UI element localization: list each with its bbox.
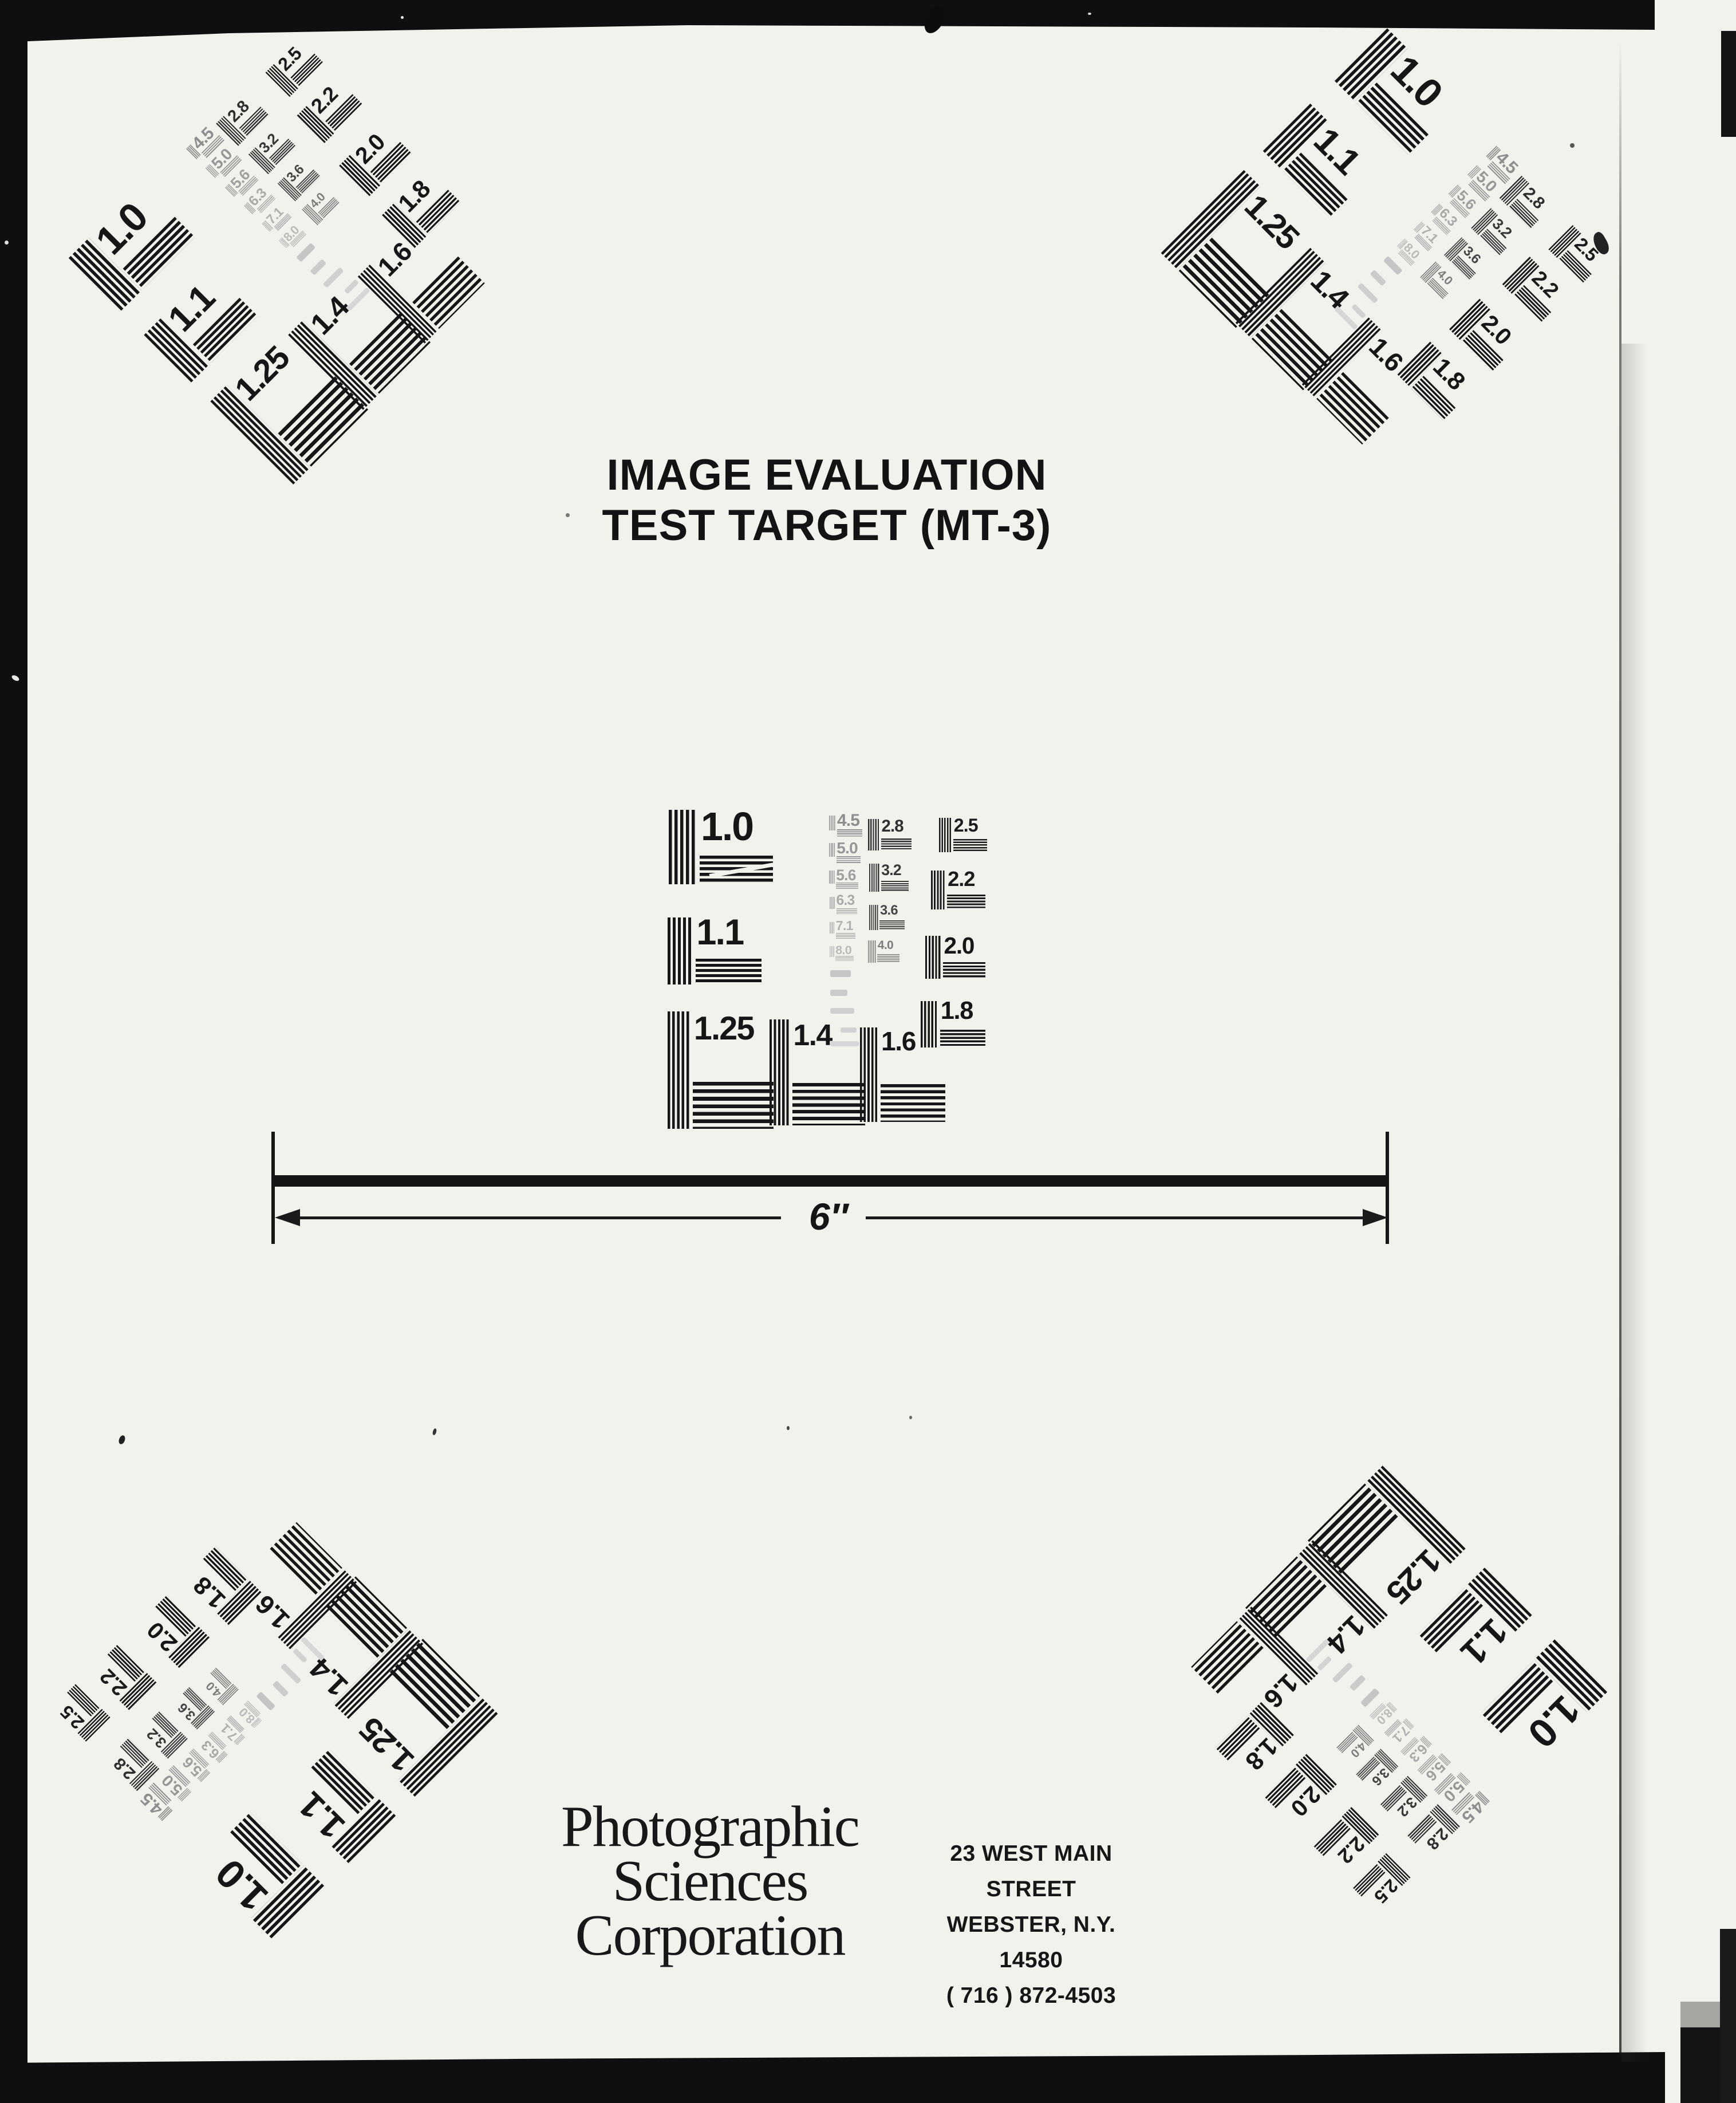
horizontal-bars: [881, 838, 912, 850]
vertical-bars: [921, 1001, 938, 1047]
horizontal-bars: [837, 856, 860, 863]
scan-speck: [1570, 143, 1575, 148]
resolution-value-label: 6.3: [837, 894, 855, 908]
resolution-value-label: 1.25: [1238, 189, 1304, 255]
horizontal-bars: [943, 962, 985, 979]
company-address: 23 WEST MAIN STREET WEBSTER, N.Y. 14580 …: [920, 1836, 1143, 2014]
resolution-value-label: 7.1: [836, 919, 853, 932]
resolution-value-label: 1.6: [881, 1028, 916, 1054]
faint-smudge: [256, 1691, 275, 1711]
horizontal-bars: [837, 829, 862, 837]
horizontal-bars: [836, 883, 858, 889]
scan-speck: [401, 16, 404, 19]
faint-smudge: [1350, 1675, 1366, 1691]
resolution-value-label: 3.6: [880, 904, 898, 917]
vertical-bars: [830, 946, 834, 957]
page-title: IMAGE EVALUATION TEST TARGET (MT-3): [578, 450, 1076, 551]
resolution-value-label: 4.0: [878, 939, 893, 951]
horizontal-bars: [881, 881, 909, 892]
resolution-value-label: 1.0: [701, 806, 753, 846]
test-target-chart-bottom-right: 1.01.11.251.41.61.82.02.22.52.83.23.64.0…: [1148, 1466, 1610, 1928]
faint-smudge: [310, 259, 326, 275]
faint-smudge: [296, 243, 315, 262]
scale-length-label: 6″: [800, 1195, 857, 1238]
title-line-2: TEST TARGET (MT-3): [578, 501, 1076, 551]
vertical-bars: [939, 818, 952, 852]
scanned-page: IMAGE EVALUATION TEST TARGET (MT-3) 1.01…: [0, 0, 1736, 2103]
test-target-chart-center: 1.01.11.251.41.61.82.02.22.52.83.23.64.0…: [668, 808, 1000, 1129]
scan-speck: [566, 513, 570, 517]
faint-smudge: [1358, 282, 1379, 304]
faint-smudge: [1332, 1662, 1353, 1683]
page-edge-shadow: [1621, 344, 1648, 2062]
vertical-bars: [869, 864, 880, 892]
scan-edge-right-lower: [1720, 1929, 1736, 2103]
horizontal-bars: [953, 839, 987, 852]
vertical-bars: [669, 810, 697, 884]
scan-edge-top: [0, 0, 1655, 46]
faint-smudge: [281, 1663, 302, 1684]
resolution-value-label: 5.6: [836, 868, 855, 883]
faint-smudge: [293, 1648, 307, 1663]
horizontal-bars: [696, 959, 762, 984]
vertical-bars: [931, 871, 946, 909]
horizontal-bars: [792, 1083, 865, 1125]
resolution-value-label: 2.8: [882, 818, 903, 834]
vertical-bars: [829, 816, 835, 830]
resolution-value-label: 5.0: [837, 840, 858, 856]
faint-smudge: [1317, 1656, 1332, 1671]
faint-smudge: [1383, 256, 1403, 275]
scan-speck: [5, 241, 9, 245]
horizontal-bars: [693, 1082, 774, 1129]
vertical-bars: [925, 936, 942, 979]
scan-speck: [1088, 13, 1091, 15]
resolution-value-label: 1.1: [696, 915, 743, 951]
vertical-bars: [668, 1011, 691, 1129]
faint-smudge: [841, 1027, 857, 1033]
faint-smudge: [273, 1680, 289, 1697]
resolution-value-label: 1.25: [694, 1013, 754, 1045]
horizontal-bars: [940, 1030, 985, 1047]
vertical-bars: [830, 922, 835, 934]
resolution-value-label: 3.2: [881, 863, 901, 878]
vertical-bars: [770, 1019, 791, 1125]
scan-speck: [118, 1435, 127, 1445]
scale-rule: [275, 1175, 1388, 1187]
company-line-1: Photographic: [532, 1799, 887, 1854]
horizontal-bars: [837, 908, 857, 915]
vertical-bars: [829, 871, 835, 884]
faint-smudge: [1360, 1688, 1380, 1707]
vertical-bars: [868, 819, 880, 850]
scale-arrowhead-left: [275, 1209, 300, 1226]
resolution-value-label: 1.8: [941, 999, 973, 1023]
horizontal-bars: [879, 920, 905, 930]
faint-smudge: [830, 990, 847, 996]
resolution-value-label: 4.5: [837, 812, 859, 829]
horizontal-bars: [877, 954, 899, 963]
scale-tick-left: [271, 1132, 275, 1244]
address-line-1: 23 WEST MAIN STREET: [920, 1836, 1143, 1907]
faint-smudge: [830, 1008, 854, 1014]
scan-speck: [787, 1426, 790, 1430]
test-target-chart-top-right: 1.01.11.251.41.61.82.02.22.52.83.23.64.0…: [1161, 26, 1623, 488]
faint-smudge: [1370, 270, 1386, 286]
company-name: Photographic Sciences Corporation: [532, 1799, 887, 1963]
test-target-chart-top-left: 1.01.11.251.41.61.82.02.22.52.83.23.64.0…: [66, 22, 528, 485]
horizontal-bars: [836, 933, 855, 939]
scan-speck: [909, 1416, 912, 1419]
scan-edge-top-right: [1721, 31, 1736, 137]
vertical-bars: [668, 917, 693, 984]
horizontal-bars: [835, 956, 854, 961]
vertical-bars: [829, 843, 835, 857]
scale-arrow-line-left: [291, 1216, 781, 1219]
company-line-2: Sciences: [532, 1854, 887, 1908]
scan-speck: [432, 1428, 437, 1435]
resolution-value-label: 8.0: [835, 944, 851, 956]
company-line-3: Corporation: [532, 1908, 887, 1963]
horizontal-bars: [947, 895, 985, 909]
vertical-bars: [868, 940, 877, 963]
scan-edge-bottom: [0, 2050, 1665, 2103]
scale-arrowhead-right: [1363, 1209, 1388, 1226]
scan-edge-left: [0, 0, 27, 2103]
resolution-value-label: 2.2: [948, 869, 974, 889]
faint-smudge: [344, 279, 359, 294]
faint-smudge: [830, 970, 851, 977]
horizontal-bars: [881, 1084, 946, 1122]
vertical-bars: [869, 905, 879, 930]
address-line-3: ( 716 ) 872-4503: [920, 1978, 1143, 2014]
vertical-bars: [830, 897, 835, 909]
faint-smudge: [1351, 304, 1366, 318]
resolution-value-label: 1.4: [793, 1021, 831, 1050]
address-line-2: WEBSTER, N.Y. 14580: [920, 1907, 1143, 1978]
resolution-value-label: 2.5: [954, 816, 978, 834]
title-line-1: IMAGE EVALUATION: [578, 450, 1076, 501]
faint-smudge: [830, 1041, 859, 1046]
scale-arrow-line-right: [866, 1216, 1375, 1219]
faint-smudge: [323, 267, 344, 288]
scale-tick-right: [1386, 1132, 1389, 1244]
vertical-bars: [860, 1027, 879, 1122]
resolution-value-label: 2.0: [944, 934, 974, 958]
test-target-chart-bottom-left: 1.01.11.251.41.61.82.02.22.52.83.23.64.0…: [36, 1479, 498, 1941]
